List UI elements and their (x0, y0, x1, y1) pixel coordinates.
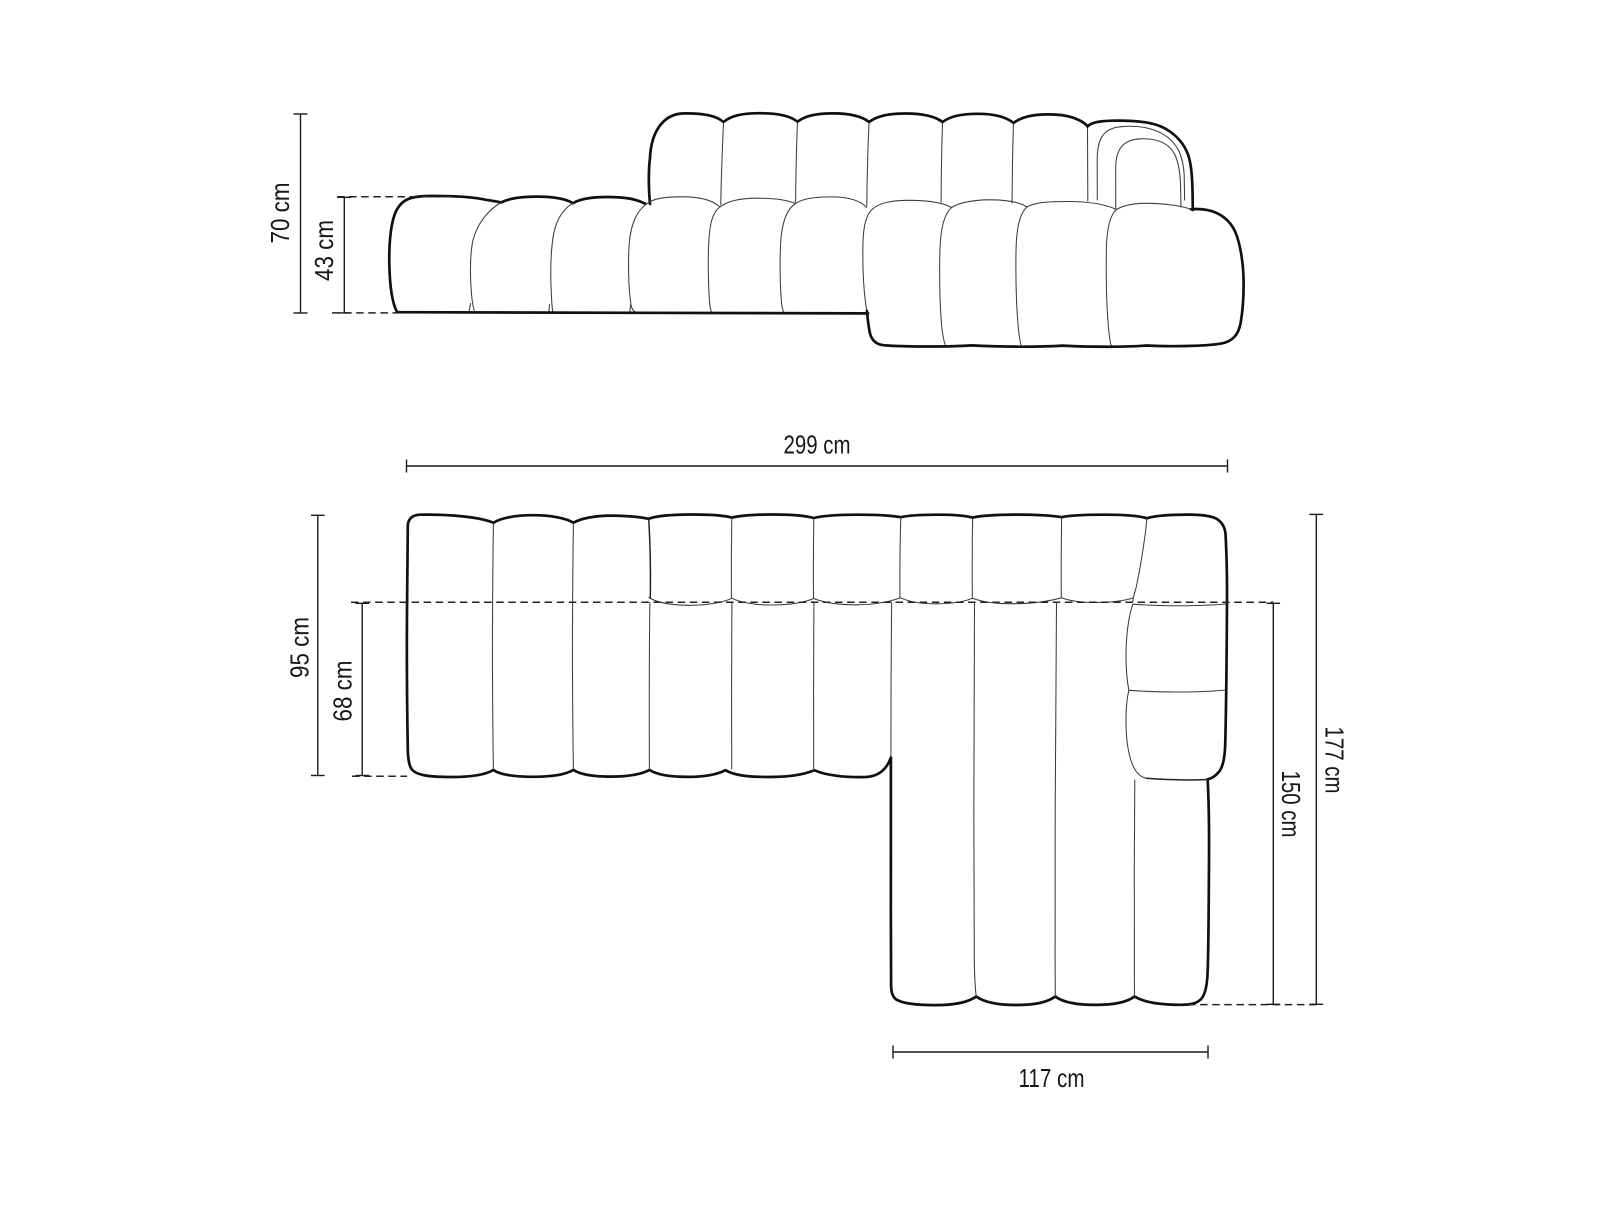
svg-text:70 cm: 70 cm (265, 183, 295, 244)
svg-text:177 cm: 177 cm (1320, 727, 1350, 794)
svg-text:117 cm: 117 cm (1019, 1063, 1085, 1093)
svg-text:299 cm: 299 cm (784, 430, 851, 460)
svg-text:43 cm: 43 cm (309, 220, 339, 281)
svg-text:150 cm: 150 cm (1276, 771, 1306, 838)
svg-text:95 cm: 95 cm (284, 617, 314, 678)
svg-text:68 cm: 68 cm (328, 661, 358, 722)
